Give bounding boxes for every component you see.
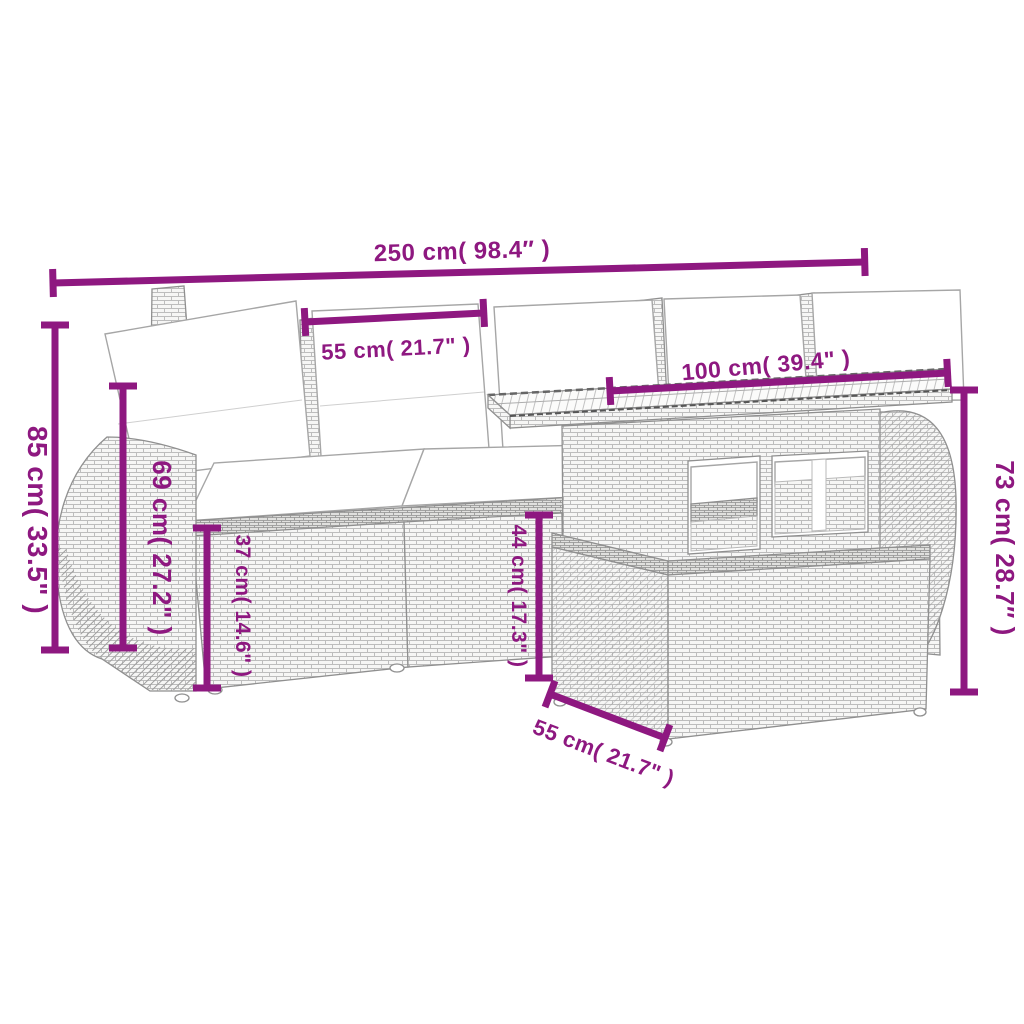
armrest-foot [175,694,189,702]
dimension-diagram: 250 cm( 98.4″ ) 55 cm( 21.7" ) 100 cm( 3… [0,0,1024,1024]
dimension-label-table-height: 73 cm( 28.7″ ) [990,460,1020,636]
opening-interior [691,516,757,551]
sofa-foot [390,664,404,672]
dimension-label-overall-height: 85 cm( 33.5" ) [22,426,53,614]
dimension-label-overall-width: 250 cm( 98.4″ ) [373,236,550,268]
back-pillow-2 [312,304,490,472]
diagram-canvas: 250 cm( 98.4″ ) 55 cm( 21.7" ) 100 cm( 3… [0,0,1024,1024]
dimension-label-backrest-height: 69 cm( 27.2" ) [147,460,177,635]
table-back-leg-gap [812,459,826,531]
dimension-label-seat-height: 37 cm( 14.6" ) [231,534,254,677]
ottoman-front-face [668,559,930,739]
ottoman-foot [914,708,926,716]
dimension-label-ottoman-height: 44 cm( 17.3" ) [507,524,530,667]
sofa-base-module-1 [192,522,408,689]
